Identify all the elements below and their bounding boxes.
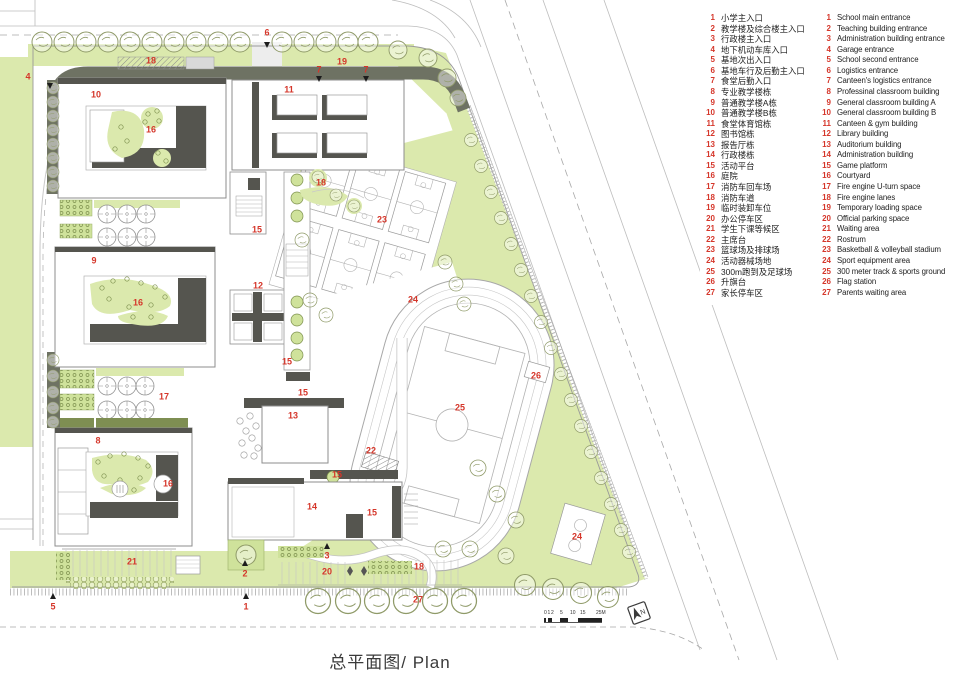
legend-number: 20	[700, 214, 715, 225]
legend-label-en: Logistics entrance	[831, 66, 898, 77]
legend-number: 13	[817, 140, 831, 151]
legend-row: 12图书馆栋12Library building	[700, 129, 958, 140]
legend-number: 1	[817, 13, 831, 24]
legend-number: 8	[700, 87, 715, 98]
legend-number: 26	[817, 277, 831, 288]
legend-label-en: Teaching building entrance	[831, 24, 927, 35]
legend-row: 13报告厅栋13Auditorium building	[700, 140, 958, 151]
scale-label: 25M	[596, 610, 606, 616]
legend-number: 3	[817, 34, 831, 45]
legend-number: 23	[700, 245, 715, 256]
legend-label-en: Basketball & volleyball stadium	[831, 245, 941, 256]
legend-label-zh: 临时装卸车位	[715, 203, 817, 214]
legend-row: 20办公停车区20Official parking space	[700, 214, 958, 225]
legend-row: 2教学楼及综合楼主入口2Teaching building entrance	[700, 24, 958, 35]
legend-number: 4	[817, 45, 831, 56]
legend-label-zh: 教学楼及综合楼主入口	[715, 24, 817, 35]
legend-row: 19临时装卸车位19Temporary loading space	[700, 203, 958, 214]
legend-number: 1	[700, 13, 715, 24]
legend-label-en: Game platform	[831, 161, 887, 172]
legend-row: 23篮球场及排球场23Basketball & volleyball stadi…	[700, 245, 958, 256]
legend-number: 7	[700, 76, 715, 87]
legend-row: 27家长停车区27Parents waiting area	[700, 288, 958, 299]
legend-number: 6	[700, 66, 715, 77]
legend-number: 19	[700, 203, 715, 214]
legend-number: 24	[817, 256, 831, 267]
legend-label-zh: 学生下课等候区	[715, 224, 817, 235]
legend-number: 21	[817, 224, 831, 235]
legend-label-zh: 报告厅栋	[715, 140, 817, 151]
legend-number: 21	[700, 224, 715, 235]
legend-label-en: General classroom building A	[831, 98, 936, 109]
legend-label-zh: 基地次出入口	[715, 55, 817, 66]
legend-number: 22	[700, 235, 715, 246]
legend-label-zh: 消防车道	[715, 193, 817, 204]
legend-row: 25300m跑到及足球场25300 meter track & sports g…	[700, 267, 958, 278]
legend-number: 20	[817, 214, 831, 225]
legend-label-en: Auditorium building	[831, 140, 901, 151]
legend-number: 6	[817, 66, 831, 77]
legend-row: 11食堂体育馆栋11Canteen & gym building	[700, 119, 958, 130]
legend-number: 2	[700, 24, 715, 35]
legend-row: 21学生下课等候区21Waiting area	[700, 224, 958, 235]
legend-label-zh: 小学主入口	[715, 13, 817, 24]
legend-row: 16庭院16Courtyard	[700, 171, 958, 182]
legend-label-zh: 活动平台	[715, 161, 817, 172]
site-plan-sheet: 1234567789101112131415151515151616161718…	[0, 0, 960, 671]
legend-number: 3	[700, 34, 715, 45]
legend-number: 5	[700, 55, 715, 66]
legend-label-en: Canteen & gym building	[831, 119, 918, 130]
legend-label-zh: 普通教学楼A栋	[715, 98, 817, 109]
legend-number: 2	[817, 24, 831, 35]
legend-number: 7	[817, 76, 831, 87]
legend-row: 14行政楼栋14Administration building	[700, 150, 958, 161]
scale-label: 2	[551, 610, 554, 616]
legend-label-zh: 行政楼栋	[715, 150, 817, 161]
legend-row: 1小学主入口1School main entrance	[700, 13, 958, 24]
legend-row: 7食堂后勤入口7Canteen's logistics entrance	[700, 76, 958, 87]
legend-number: 12	[700, 129, 715, 140]
legend-label-en: Official parking space	[831, 214, 909, 225]
legend-label-zh: 办公停车区	[715, 214, 817, 225]
legend-label-zh: 庭院	[715, 171, 817, 182]
legend-number: 18	[700, 193, 715, 204]
scale-label: 10	[570, 610, 576, 616]
legend-number: 8	[817, 87, 831, 98]
legend-number: 10	[817, 108, 831, 119]
legend-row: 3行政楼主入口3Administration building entrance	[700, 34, 958, 45]
legend-number: 25	[700, 267, 715, 278]
legend-label-en: Administration building entrance	[831, 34, 945, 45]
legend-number: 16	[817, 171, 831, 182]
legend-label-zh: 食堂体育馆栋	[715, 119, 817, 130]
scale-label: 1	[548, 610, 551, 616]
legend-label-zh: 基地车行及后勤主入口	[715, 66, 817, 77]
legend-number: 22	[817, 235, 831, 246]
legend-label-en: Temporary loading space	[831, 203, 922, 214]
legend-row: 24活动器械场地24Sport equipment area	[700, 256, 958, 267]
legend-number: 5	[817, 55, 831, 66]
legend-number: 13	[700, 140, 715, 151]
legend: 1小学主入口1School main entrance2教学楼及综合楼主入口2T…	[700, 13, 958, 298]
legend-number: 9	[700, 98, 715, 109]
legend-label-zh: 篮球场及排球场	[715, 245, 817, 256]
legend-label-zh: 地下机动车库入口	[715, 45, 817, 56]
legend-number: 27	[817, 288, 831, 299]
legend-row: 22主席台22Rostrum	[700, 235, 958, 246]
legend-label-zh: 升旗台	[715, 277, 817, 288]
legend-number: 27	[700, 288, 715, 299]
scale-bar: 0125101525M	[544, 610, 608, 628]
building-8-professional-classroom	[55, 428, 192, 546]
legend-row: 15活动平台15Game platform	[700, 161, 958, 172]
legend-label-en: Waiting area	[831, 224, 879, 235]
legend-number: 25	[817, 267, 831, 278]
legend-number: 15	[700, 161, 715, 172]
legend-label-en: Courtyard	[831, 171, 870, 182]
legend-label-en: Fire engine U-turn space	[831, 182, 920, 193]
legend-number: 11	[700, 119, 715, 130]
legend-label-en: Flag station	[831, 277, 876, 288]
legend-row: 6基地车行及后勤主入口6Logistics entrance	[700, 66, 958, 77]
legend-label-en: Administration building	[831, 150, 913, 161]
legend-label-en: Library building	[831, 129, 888, 140]
legend-number: 15	[817, 161, 831, 172]
legend-label-en: School second entrance	[831, 55, 918, 66]
legend-label-zh: 普通教学楼B栋	[715, 108, 817, 119]
scale-label: 0	[544, 610, 547, 616]
legend-row: 17消防车回车场17Fire engine U-turn space	[700, 182, 958, 193]
legend-number: 4	[700, 45, 715, 56]
legend-number: 17	[817, 182, 831, 193]
legend-number: 14	[700, 150, 715, 161]
legend-label-zh: 家长停车区	[715, 288, 817, 299]
legend-number: 23	[817, 245, 831, 256]
legend-number: 14	[817, 150, 831, 161]
legend-label-zh: 行政楼主入口	[715, 34, 817, 45]
legend-row: 4地下机动车库入口4Garage entrance	[700, 45, 958, 56]
building-10-general-classroom-b	[58, 78, 226, 198]
building-11-canteen-gym	[232, 80, 404, 170]
legend-row: 5基地次出入口5School second entrance	[700, 55, 958, 66]
building-12-library	[230, 290, 286, 344]
legend-row: 8专业教学楼栋8Professinal classroom building	[700, 87, 958, 98]
platform-15-strip	[284, 172, 310, 381]
scale-label: 15	[580, 610, 586, 616]
legend-label-en: Sport equipment area	[831, 256, 910, 267]
legend-label-zh: 消防车回车场	[715, 182, 817, 193]
legend-number: 18	[817, 193, 831, 204]
legend-row: 18消防车道18Fire engine lanes	[700, 193, 958, 204]
legend-label-en: Canteen's logistics entrance	[831, 76, 931, 87]
building-9-general-classroom-a	[55, 247, 215, 367]
legend-row: 26升旗台26Flag station	[700, 277, 958, 288]
legend-label-en: Professinal classroom building	[831, 87, 939, 98]
legend-label-zh: 主席台	[715, 235, 817, 246]
legend-label-zh: 活动器械场地	[715, 256, 817, 267]
legend-label-en: Fire engine lanes	[831, 193, 895, 204]
scale-label: 5	[560, 610, 563, 616]
legend-label-en: Garage entrance	[831, 45, 894, 56]
legend-label-zh: 300m跑到及足球场	[715, 267, 817, 278]
legend-label-en: General classroom building B	[831, 108, 936, 119]
legend-label-en: 300 meter track & sports ground	[831, 267, 945, 278]
legend-label-en: Parents waiting area	[831, 288, 906, 299]
legend-number: 11	[817, 119, 831, 130]
legend-row: 10普通教学楼B栋10General classroom building B	[700, 108, 958, 119]
north-arrow: N	[626, 600, 652, 626]
legend-label-en: Rostrum	[831, 235, 866, 246]
legend-number: 19	[817, 203, 831, 214]
plan-title: 总平面图/ Plan	[0, 648, 780, 673]
legend-label-zh: 专业教学楼栋	[715, 87, 817, 98]
legend-number: 26	[700, 277, 715, 288]
legend-row: 9普通教学楼A栋9General classroom building A	[700, 98, 958, 109]
legend-label-zh: 图书馆栋	[715, 129, 817, 140]
legend-label-zh: 食堂后勤入口	[715, 76, 817, 87]
legend-number: 16	[700, 171, 715, 182]
legend-number: 12	[817, 129, 831, 140]
legend-number: 10	[700, 108, 715, 119]
legend-number: 17	[700, 182, 715, 193]
legend-number: 24	[700, 256, 715, 267]
legend-label-en: School main entrance	[831, 13, 910, 24]
legend-number: 9	[817, 98, 831, 109]
